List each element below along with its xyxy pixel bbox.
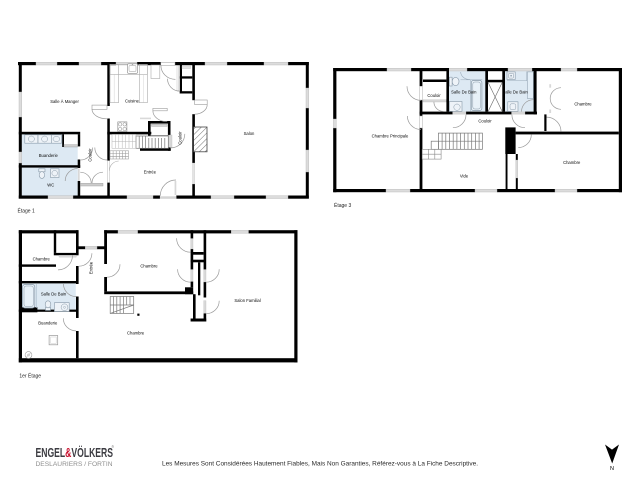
svg-text:Salle À Manger: Salle À Manger	[50, 99, 79, 104]
svg-text:Cuisine: Cuisine	[125, 99, 140, 104]
svg-text:Couloir: Couloir	[427, 93, 441, 98]
svg-text:N: N	[610, 466, 614, 472]
svg-text:Salon: Salon	[244, 131, 255, 136]
svg-text:Chambre: Chambre	[140, 263, 158, 268]
svg-text:Couloir: Couloir	[478, 119, 492, 124]
svg-text:Chambre: Chambre	[574, 102, 592, 107]
svg-text:Buanderie: Buanderie	[38, 321, 58, 326]
svg-text:Les Mesures Sont Considérées H: Les Mesures Sont Considérées Hautement F…	[162, 461, 478, 468]
svg-text:Étage 3: Étage 3	[334, 202, 351, 209]
svg-text:Vide: Vide	[460, 173, 469, 178]
svg-text:®: ®	[112, 445, 115, 449]
svg-text:Salle De Bain: Salle De Bain	[502, 90, 528, 95]
svg-text:ENGEL&VÖLKERS: ENGEL&VÖLKERS	[36, 445, 114, 460]
svg-text:Chambre: Chambre	[127, 331, 145, 336]
svg-text:DESLAURIERS / FORTIN: DESLAURIERS / FORTIN	[36, 461, 113, 468]
svg-text:Salle De Bain: Salle De Bain	[451, 90, 477, 95]
svg-text:1er Étage: 1er Étage	[19, 373, 41, 380]
svg-text:Couloir: Couloir	[178, 131, 183, 145]
svg-text:Salon Familial: Salon Familial	[234, 298, 260, 303]
svg-text:Étage 1: Étage 1	[18, 208, 35, 215]
svg-text:Entrée: Entrée	[144, 170, 157, 175]
svg-text:Couloir: Couloir	[88, 148, 93, 162]
svg-text:Chambre: Chambre	[33, 257, 51, 262]
svg-text:Entrée: Entrée	[89, 261, 94, 274]
svg-text:Chambre: Chambre	[563, 160, 581, 165]
svg-text:Buanderie: Buanderie	[39, 153, 59, 158]
svg-text:Salle De Bain: Salle De Bain	[41, 292, 67, 297]
svg-text:Chambre Principale: Chambre Principale	[372, 133, 409, 138]
svg-text:WC: WC	[47, 183, 54, 188]
